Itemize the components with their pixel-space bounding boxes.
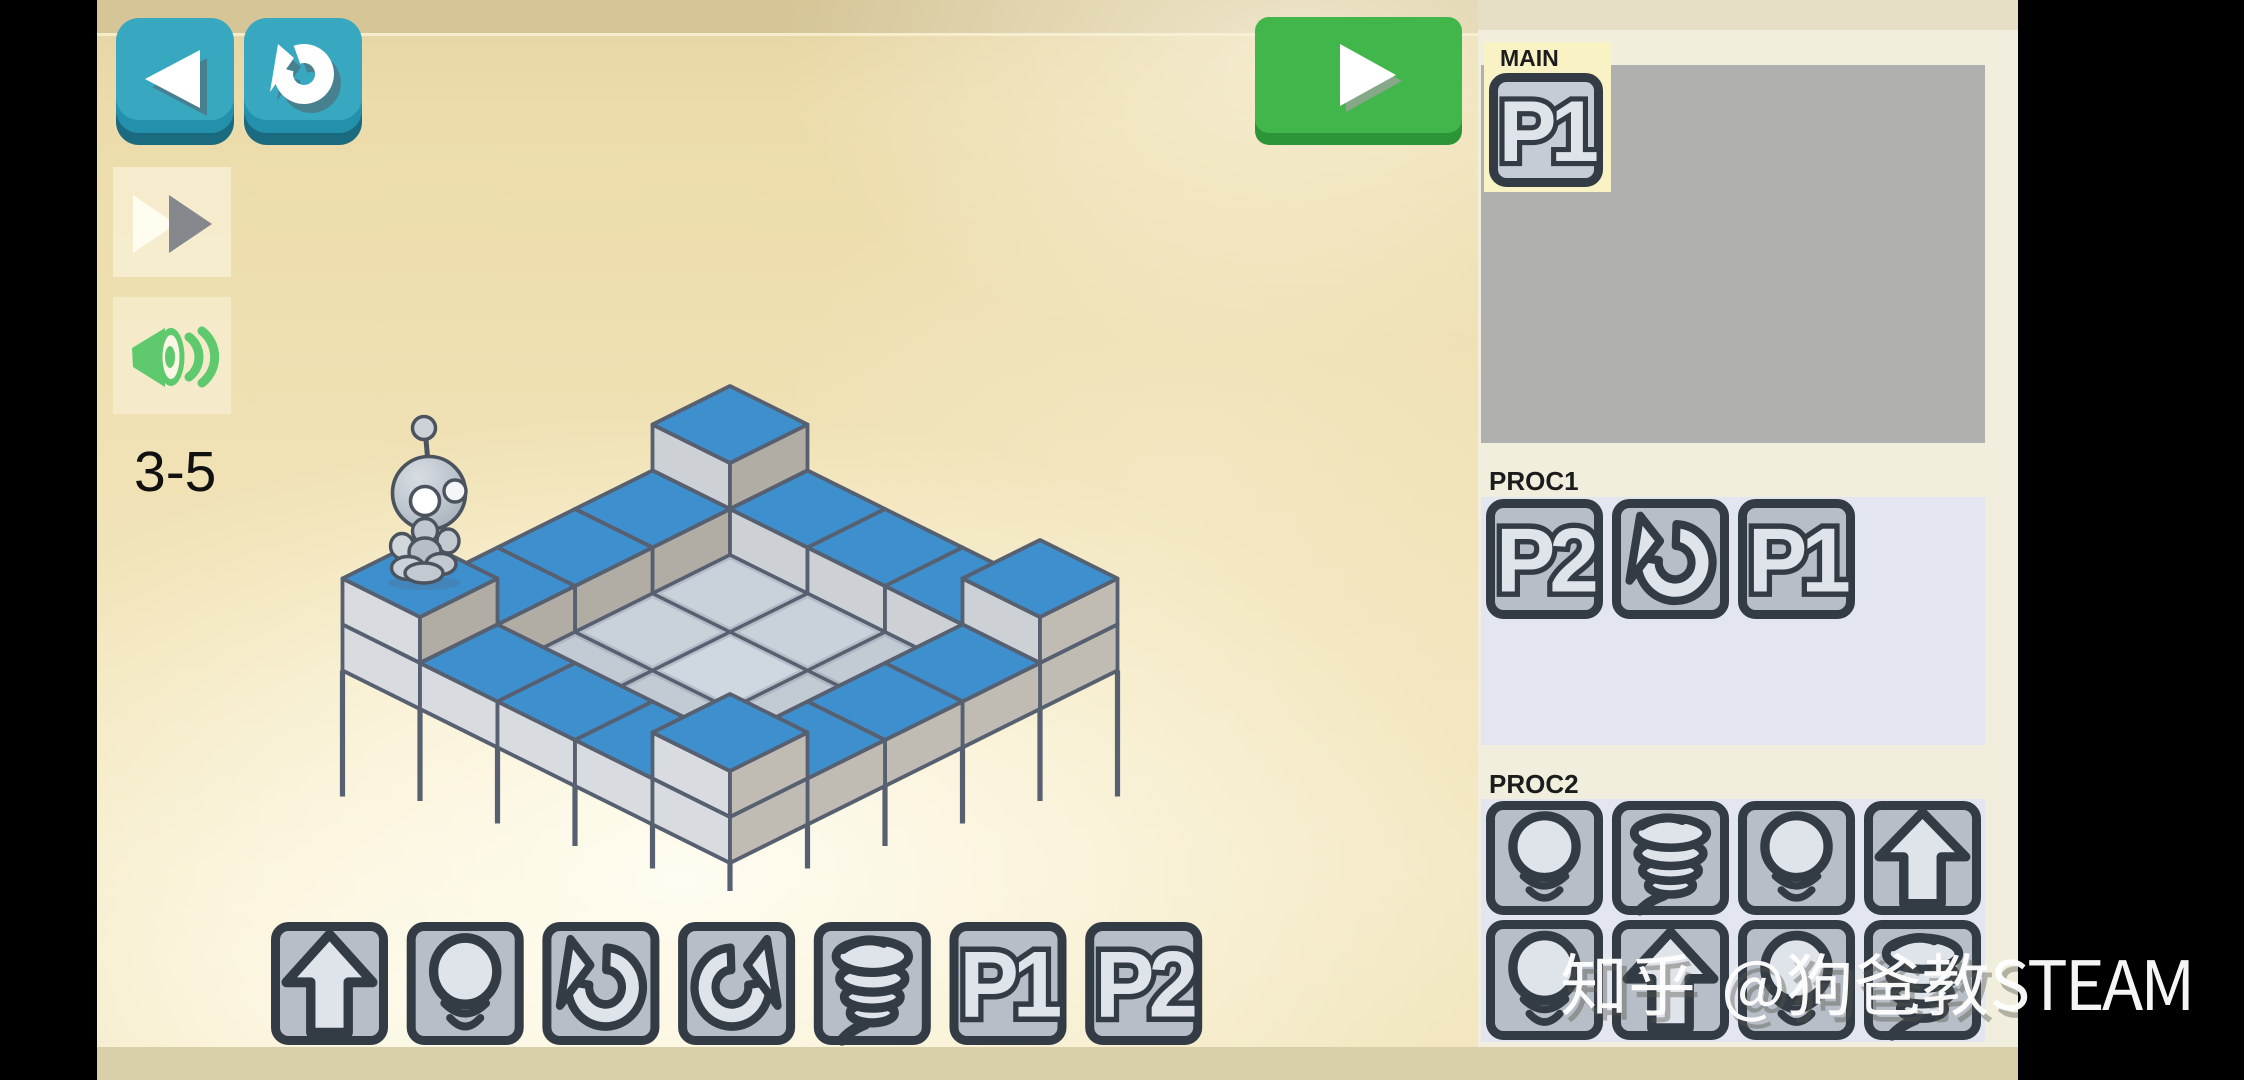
svg-text:P1: P1 <box>959 933 1060 1038</box>
svg-text:P1: P1 <box>1748 509 1849 611</box>
svg-text:PROC2: PROC2 <box>1489 769 1579 799</box>
svg-text:P2: P2 <box>1496 509 1596 611</box>
svg-text:MAIN: MAIN <box>1500 45 1559 71</box>
svg-text:3-5: 3-5 <box>134 440 216 504</box>
svg-text:P1: P1 <box>1499 84 1597 180</box>
svg-text:PROC1: PROC1 <box>1489 466 1579 496</box>
svg-text:P2: P2 <box>1095 933 1195 1038</box>
